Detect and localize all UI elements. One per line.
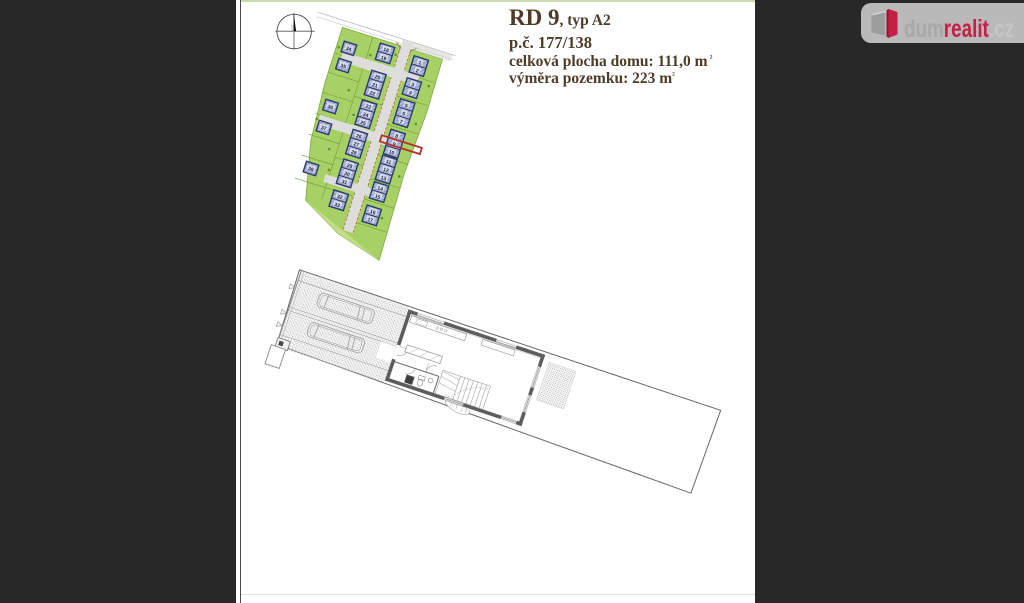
- svg-text:dumrealit.cz: dumrealit.cz: [904, 15, 1014, 43]
